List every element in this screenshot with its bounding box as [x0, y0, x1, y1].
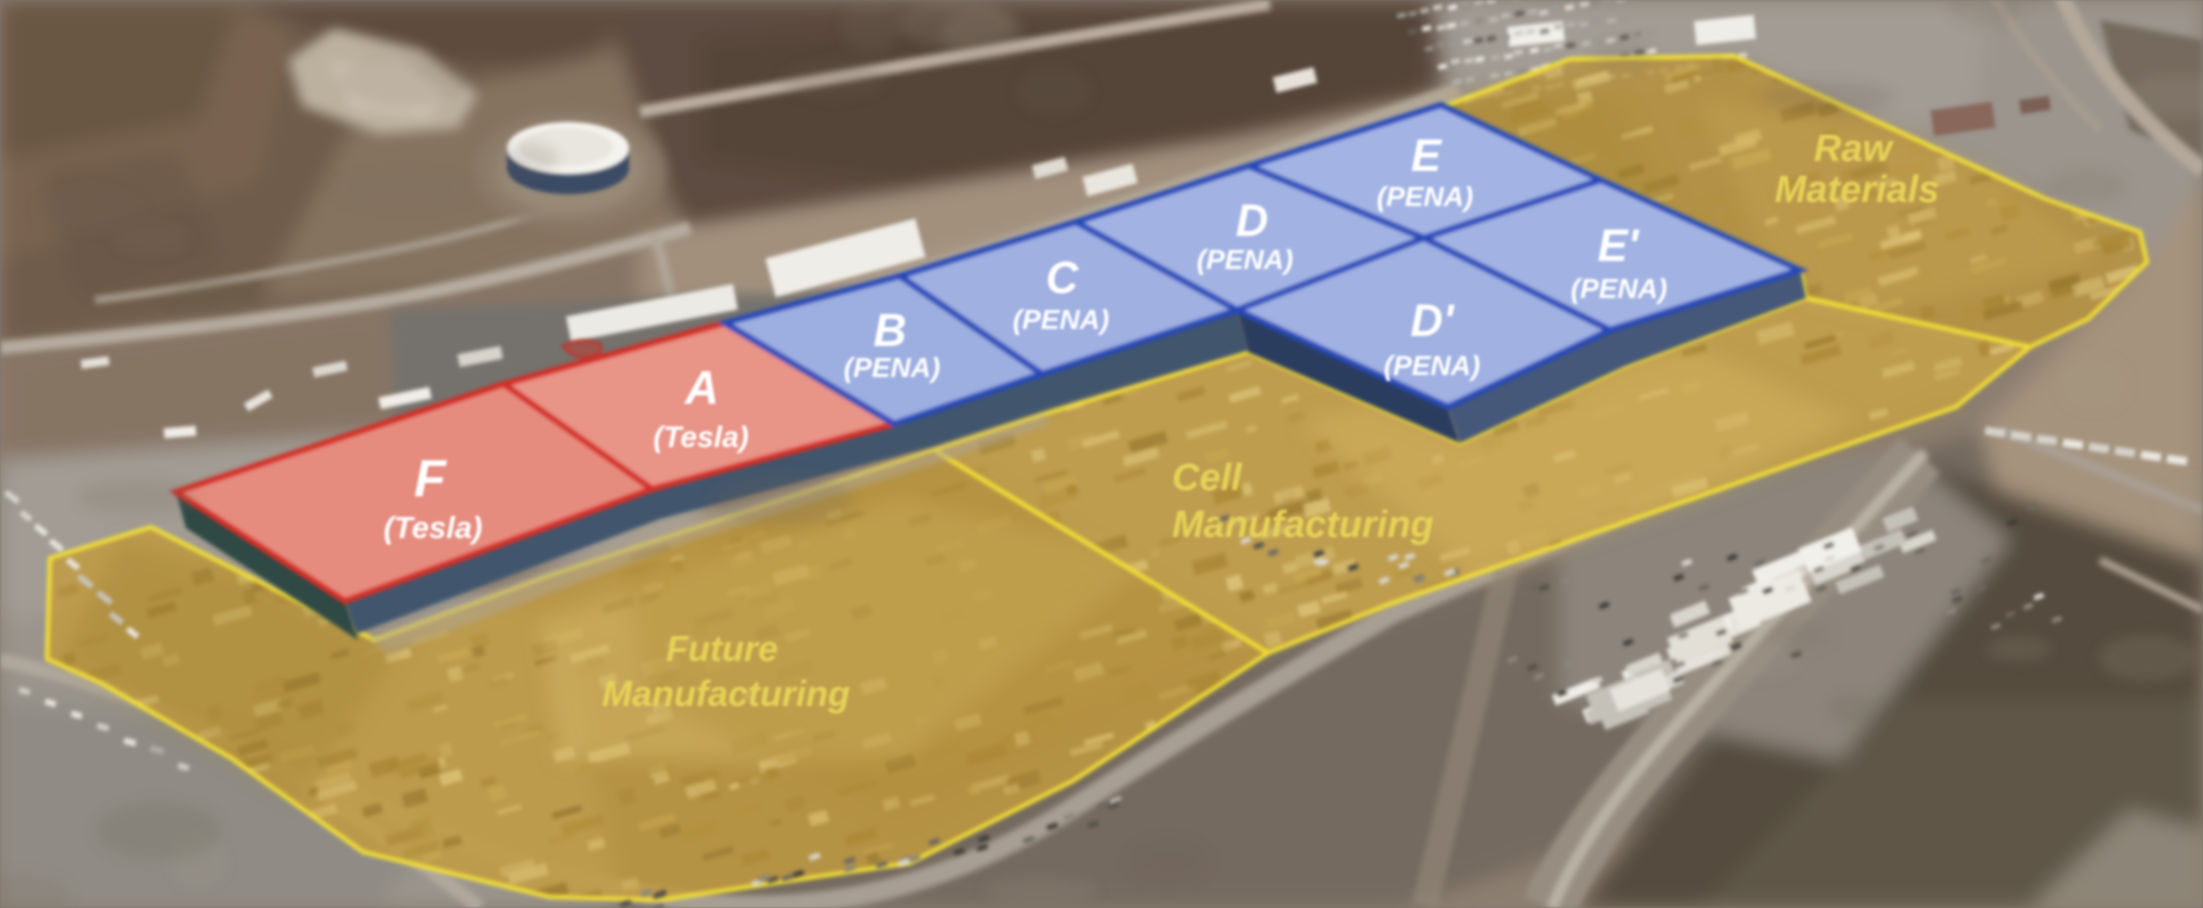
svg-text:E: E: [1411, 130, 1443, 181]
svg-text:Materials: Materials: [1775, 169, 1940, 211]
svg-text:Manufacturing: Manufacturing: [602, 673, 850, 714]
svg-text:(PENA): (PENA): [1377, 181, 1473, 212]
svg-text:Cell: Cell: [1172, 457, 1243, 499]
svg-text:F: F: [414, 450, 447, 508]
svg-text:A: A: [684, 361, 719, 414]
svg-text:D': D': [1410, 295, 1454, 346]
svg-text:Future: Future: [666, 628, 778, 669]
svg-text:(Tesla): (Tesla): [384, 510, 483, 545]
svg-text:(Tesla): (Tesla): [653, 421, 749, 454]
svg-text:(PENA): (PENA): [844, 352, 940, 383]
svg-text:C: C: [1046, 252, 1080, 303]
svg-text:(PENA): (PENA): [1571, 273, 1667, 304]
svg-text:Raw: Raw: [1814, 128, 1895, 170]
svg-text:(PENA): (PENA): [1013, 304, 1109, 335]
svg-text:(PENA): (PENA): [1384, 350, 1480, 381]
svg-text:Manufacturing: Manufacturing: [1172, 504, 1434, 546]
svg-text:D: D: [1236, 195, 1269, 246]
svg-text:(PENA): (PENA): [1197, 244, 1293, 275]
svg-text:B: B: [873, 304, 906, 356]
svg-text:E': E': [1598, 220, 1640, 271]
